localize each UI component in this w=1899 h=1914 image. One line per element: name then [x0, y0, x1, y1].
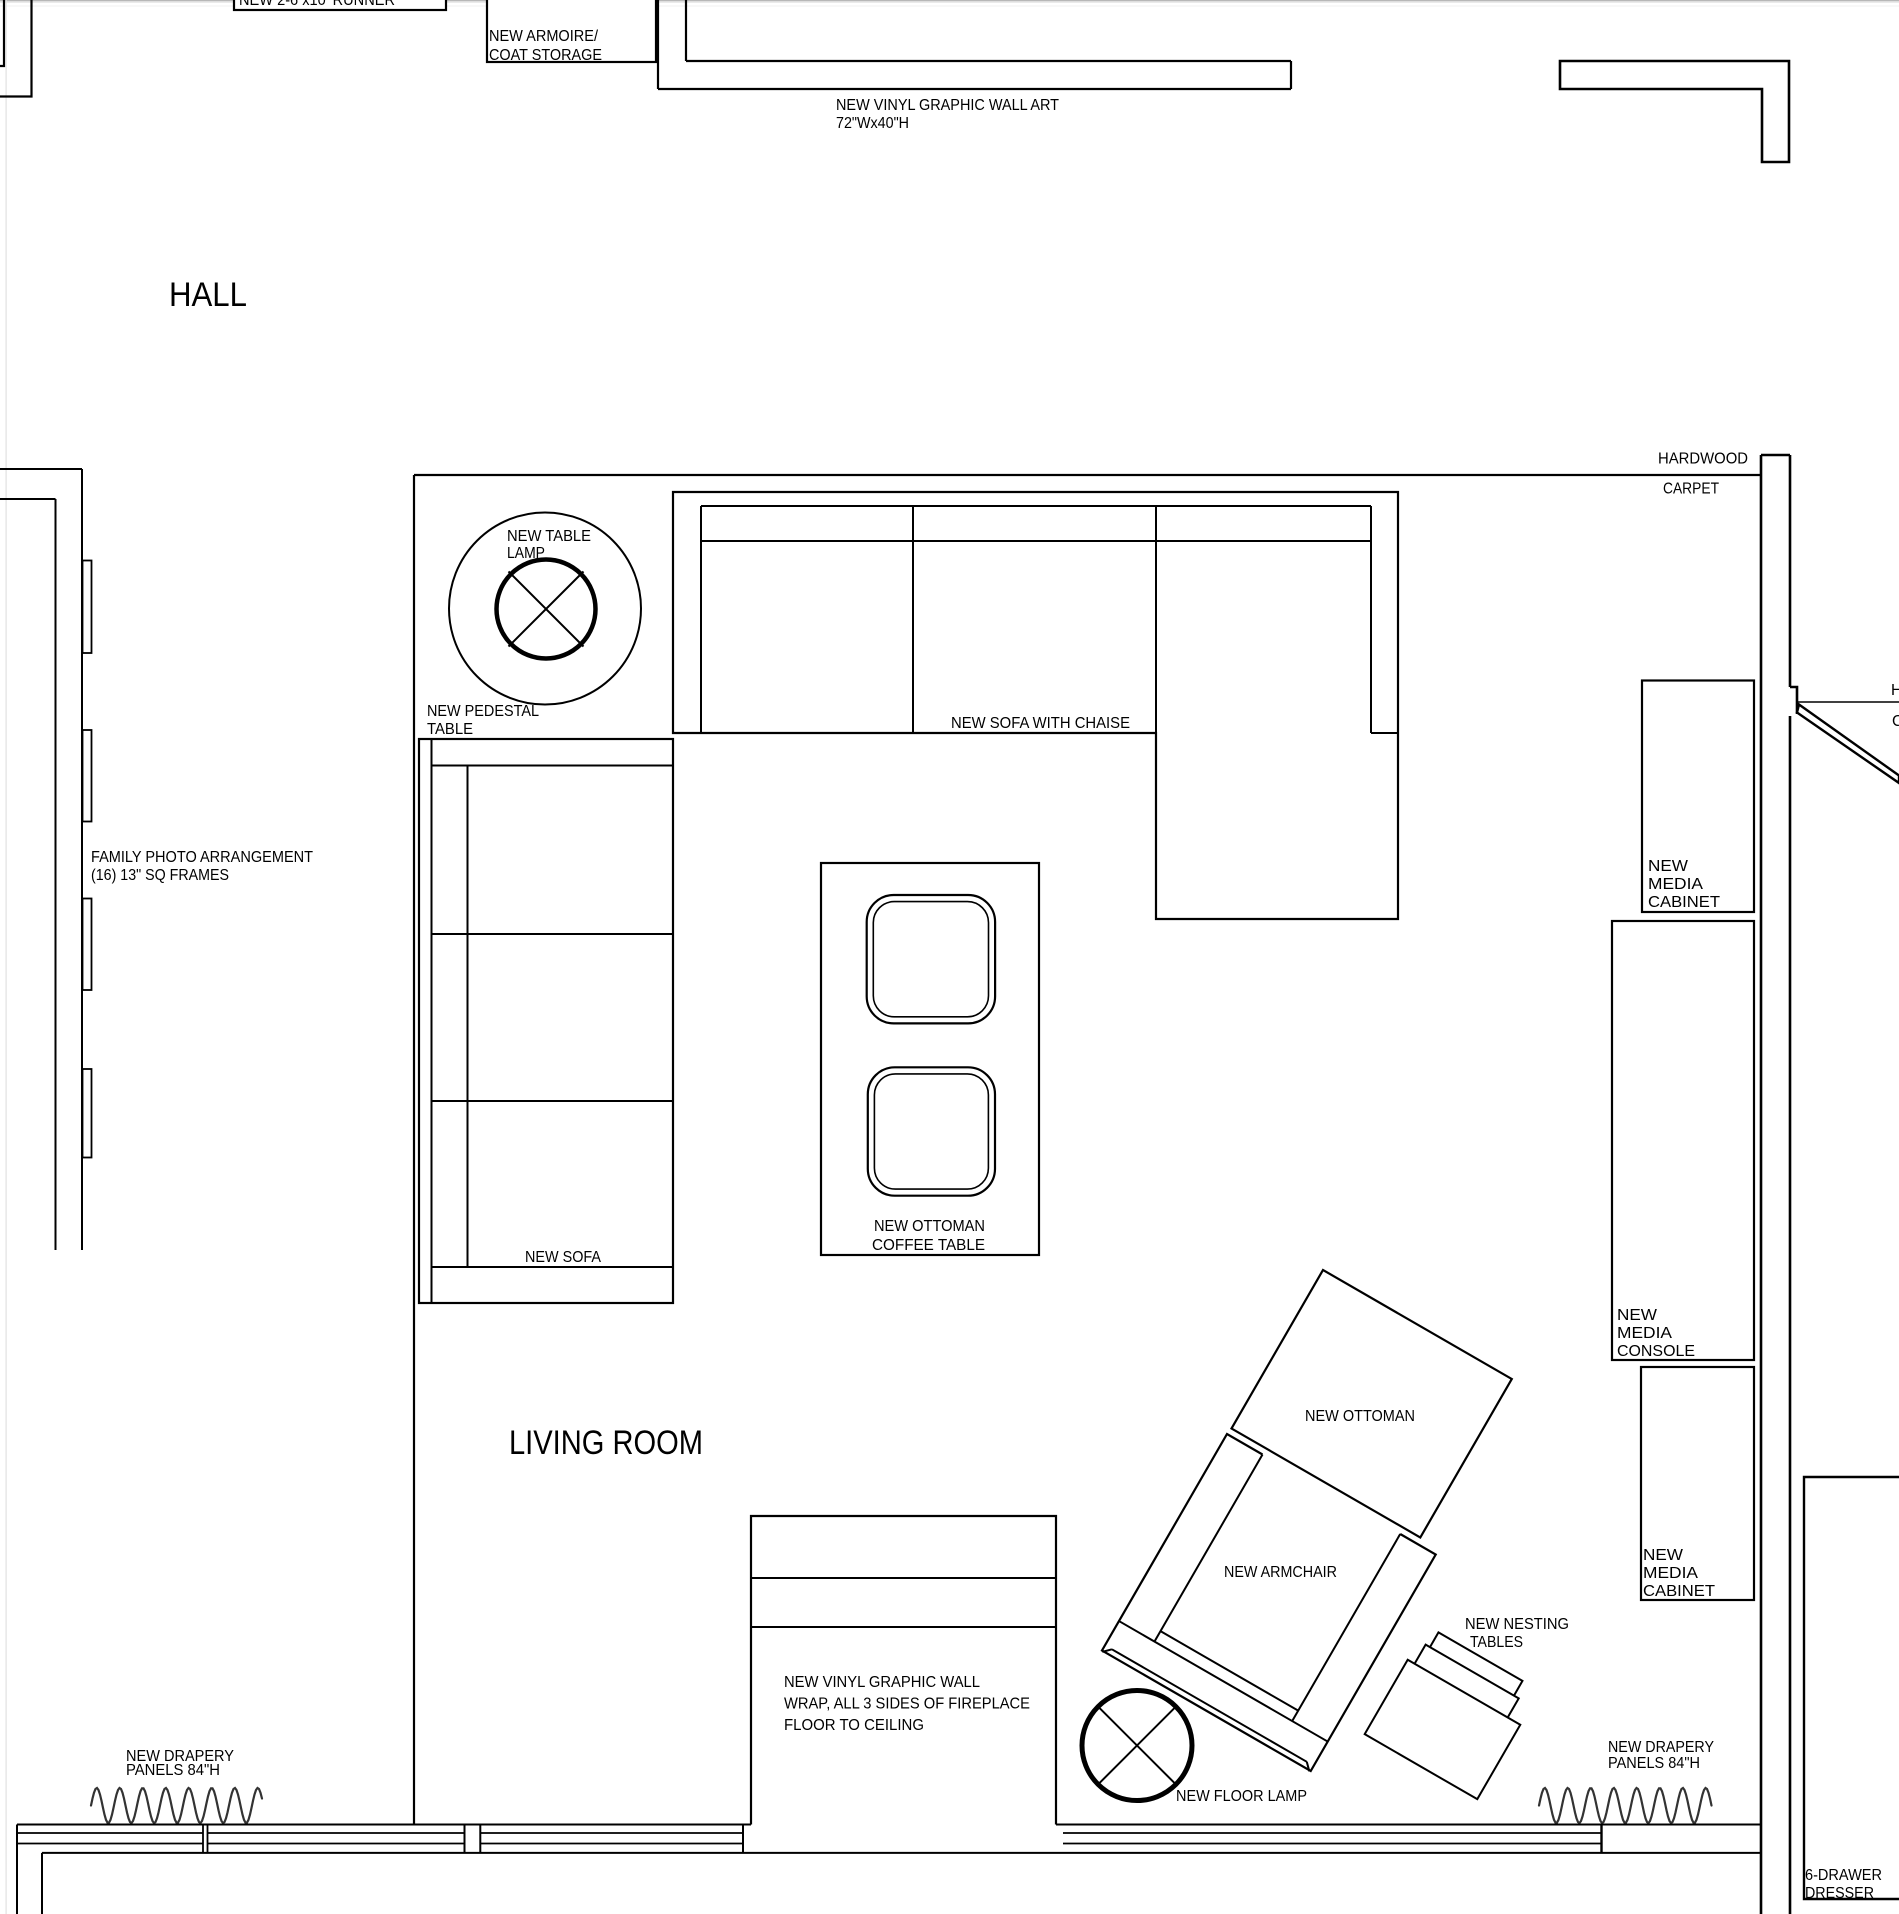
svg-text:6-DRAWER: 6-DRAWER — [1805, 1867, 1882, 1884]
svg-text:MEDIA: MEDIA — [1617, 1325, 1673, 1342]
svg-text:COAT STORAGE: COAT STORAGE — [489, 47, 602, 64]
svg-text:NEW FLOOR LAMP: NEW FLOOR LAMP — [1176, 1788, 1307, 1805]
svg-text:FAMILY PHOTO ARRANGEMENT: FAMILY PHOTO ARRANGEMENT — [91, 849, 313, 866]
svg-text:WRAP, ALL 3 SIDES OF FIREPLACE: WRAP, ALL 3 SIDES OF FIREPLACE — [784, 1696, 1030, 1713]
svg-text:NEW ARMOIRE/: NEW ARMOIRE/ — [489, 28, 599, 45]
svg-text:NEW TABLE: NEW TABLE — [507, 528, 591, 545]
svg-text:HARDWOOD: HARDWOOD — [1658, 451, 1748, 468]
svg-text:NEW: NEW — [1617, 1307, 1657, 1324]
svg-text:NEW NESTING: NEW NESTING — [1465, 1616, 1569, 1633]
svg-text:HALL: HALL — [169, 276, 247, 314]
svg-text:CABINET: CABINET — [1648, 894, 1721, 911]
svg-text:MEDIA: MEDIA — [1643, 1565, 1699, 1582]
svg-text:FLOOR TO CEILING: FLOOR TO CEILING — [784, 1717, 924, 1734]
svg-text:CARPET: CARPET — [1892, 713, 1899, 730]
svg-text:NEW VINYL GRAPHIC WALL ART: NEW VINYL GRAPHIC WALL ART — [836, 97, 1059, 114]
svg-text:TABLES: TABLES — [1470, 1634, 1523, 1651]
svg-text:(16) 13" SQ FRAMES: (16) 13" SQ FRAMES — [91, 867, 229, 884]
svg-text:NEW OTTOMAN: NEW OTTOMAN — [1305, 1408, 1415, 1425]
svg-text:NEW: NEW — [1648, 858, 1688, 875]
svg-text:CONSOLE: CONSOLE — [1617, 1343, 1695, 1360]
svg-text:MEDIA: MEDIA — [1648, 876, 1704, 893]
svg-text:DRESSER: DRESSER — [1805, 1885, 1874, 1902]
svg-text:COFFEE TABLE: COFFEE TABLE — [872, 1237, 985, 1254]
svg-text:NEW 2-6 x10' RUNNER: NEW 2-6 x10' RUNNER — [239, 0, 395, 9]
svg-text:NEW SOFA: NEW SOFA — [525, 1249, 602, 1266]
svg-text:PANELS 84"H: PANELS 84"H — [1608, 1755, 1700, 1772]
svg-text:NEW DRAPERY: NEW DRAPERY — [1608, 1739, 1714, 1756]
svg-text:PANELS 84"H: PANELS 84"H — [126, 1762, 220, 1779]
svg-text:NEW VINYL GRAPHIC WALL: NEW VINYL GRAPHIC WALL — [784, 1674, 980, 1691]
svg-text:LIVING ROOM: LIVING ROOM — [509, 1424, 703, 1462]
svg-text:NEW SOFA WITH CHAISE: NEW SOFA WITH CHAISE — [951, 715, 1130, 732]
svg-text:TABLE: TABLE — [427, 721, 473, 738]
svg-text:CABINET: CABINET — [1643, 1583, 1716, 1600]
svg-text:CARPET: CARPET — [1663, 481, 1719, 498]
svg-text:NEW OTTOMAN: NEW OTTOMAN — [874, 1218, 985, 1235]
svg-text:72"Wx40"H: 72"Wx40"H — [836, 115, 909, 132]
svg-text:NEW PEDESTAL: NEW PEDESTAL — [427, 703, 539, 720]
svg-text:HARDWOOD: HARDWOOD — [1891, 682, 1899, 699]
svg-text:NEW: NEW — [1643, 1547, 1683, 1564]
svg-text:NEW ARMCHAIR: NEW ARMCHAIR — [1224, 1564, 1337, 1581]
svg-text:LAMP: LAMP — [507, 545, 545, 562]
